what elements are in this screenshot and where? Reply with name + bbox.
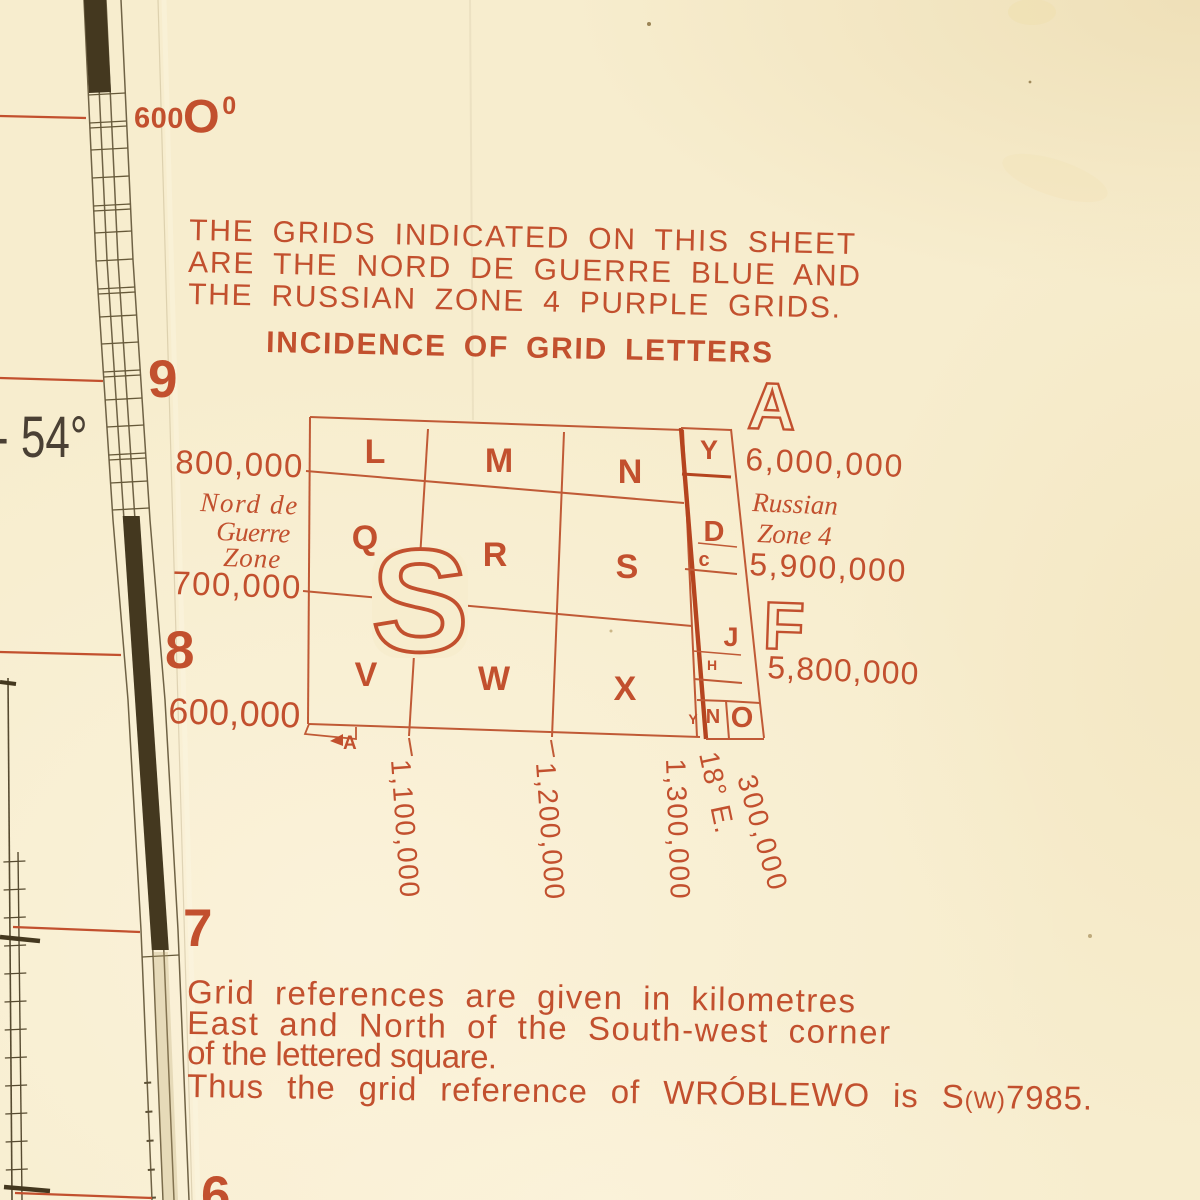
svg-text:A: A bbox=[343, 733, 357, 754]
svg-text:6: 6 bbox=[201, 1166, 230, 1200]
svg-text:L: L bbox=[365, 433, 386, 471]
svg-text:600,000: 600,000 bbox=[168, 690, 301, 736]
svg-text:1,300,000: 1,300,000 bbox=[660, 758, 696, 899]
svg-text:7: 7 bbox=[183, 899, 212, 958]
svg-text:Russian: Russian bbox=[751, 487, 839, 521]
svg-text:6,000,000: 6,000,000 bbox=[745, 441, 903, 484]
svg-text:- 54°: - 54° bbox=[0, 404, 87, 469]
svg-text:N: N bbox=[618, 453, 643, 491]
svg-text:300,000: 300,000 bbox=[731, 771, 793, 893]
svg-text:X: X bbox=[614, 670, 637, 708]
svg-text:9: 9 bbox=[148, 350, 177, 409]
svg-text:18° E.: 18° E. bbox=[693, 749, 740, 836]
svg-text:5,900,000: 5,900,000 bbox=[749, 546, 906, 589]
svg-text:J: J bbox=[723, 622, 738, 652]
svg-text:S: S bbox=[371, 519, 468, 682]
svg-text:Nord de: Nord de bbox=[199, 487, 298, 520]
svg-text:1,200,000: 1,200,000 bbox=[530, 761, 570, 900]
svg-text:Y: Y bbox=[700, 435, 718, 465]
svg-text:1,100,000: 1,100,000 bbox=[385, 758, 426, 898]
svg-text:8: 8 bbox=[165, 621, 194, 680]
svg-text:800,000: 800,000 bbox=[175, 443, 303, 484]
svg-text:H: H bbox=[707, 657, 717, 673]
svg-text:INCIDENCE OF GRID LETTERS: INCIDENCE OF GRID LETTERS bbox=[266, 326, 773, 370]
svg-text:M: M bbox=[485, 442, 513, 480]
svg-text:600: 600 bbox=[134, 102, 184, 135]
svg-text:0: 0 bbox=[222, 92, 236, 120]
svg-text:S: S bbox=[616, 548, 639, 586]
svg-text:W: W bbox=[478, 660, 511, 698]
svg-text:700,000: 700,000 bbox=[172, 564, 301, 605]
svg-text:5,800,000: 5,800,000 bbox=[767, 649, 919, 692]
svg-text:D: D bbox=[704, 516, 725, 548]
svg-text:O: O bbox=[731, 702, 754, 734]
svg-text:O: O bbox=[183, 89, 220, 143]
svg-text:R: R bbox=[483, 536, 508, 574]
svg-text:Thus the grid reference of WRÓ: Thus the grid reference of WRÓBLEWO is S… bbox=[187, 1067, 1092, 1117]
svg-text:N: N bbox=[706, 706, 720, 728]
svg-text:c: c bbox=[698, 549, 709, 571]
svg-text:Y: Y bbox=[688, 711, 698, 727]
svg-text:A: A bbox=[747, 368, 797, 444]
